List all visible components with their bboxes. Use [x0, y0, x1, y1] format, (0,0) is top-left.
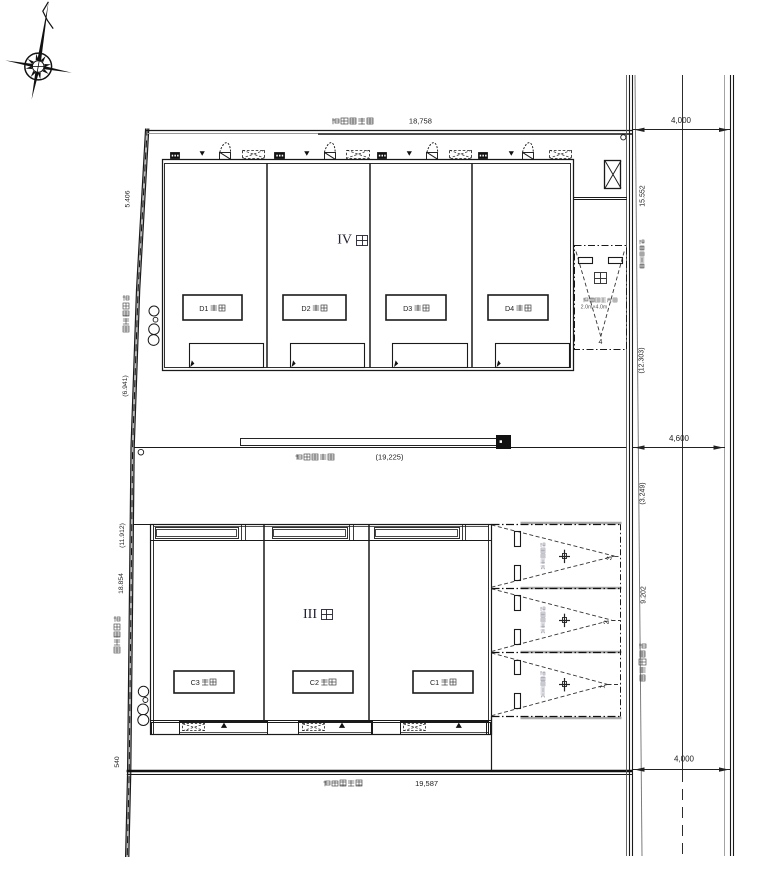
- svg-text:(3.249): (3.249): [640, 482, 647, 504]
- svg-text:540: 540: [114, 756, 121, 768]
- svg-text:4: 4: [599, 339, 603, 346]
- svg-text:3: 3: [604, 556, 613, 560]
- svg-text:18.854: 18.854: [118, 573, 125, 594]
- svg-text:C3: C3: [191, 678, 200, 687]
- svg-text:C1: C1: [430, 678, 439, 687]
- svg-text:19,587: 19,587: [415, 779, 438, 788]
- svg-text:(19,225): (19,225): [376, 453, 404, 462]
- svg-text:15.552: 15.552: [640, 185, 647, 207]
- svg-text:(12.303): (12.303): [639, 347, 646, 373]
- svg-text:4,000: 4,000: [674, 755, 695, 764]
- svg-text:5.406: 5.406: [125, 190, 132, 207]
- svg-text:18,758: 18,758: [409, 116, 432, 125]
- svg-text:(6.941): (6.941): [122, 375, 129, 397]
- svg-text:(11.912): (11.912): [119, 523, 126, 548]
- svg-text:D4: D4: [505, 304, 514, 313]
- svg-text:D2: D2: [301, 304, 310, 313]
- svg-text:9.202: 9.202: [641, 586, 648, 604]
- svg-text:IV: IV: [337, 233, 352, 248]
- svg-text:III: III: [303, 607, 317, 622]
- svg-text:1: 1: [597, 685, 606, 689]
- svg-text:D1: D1: [199, 304, 208, 313]
- svg-text:2.0m×4.0m: 2.0m×4.0m: [581, 305, 608, 311]
- svg-text:D3: D3: [403, 304, 412, 313]
- svg-text:C2: C2: [310, 678, 319, 687]
- svg-text:4,000: 4,000: [671, 116, 692, 125]
- svg-text:2: 2: [601, 620, 610, 624]
- svg-text:4,600: 4,600: [669, 434, 690, 443]
